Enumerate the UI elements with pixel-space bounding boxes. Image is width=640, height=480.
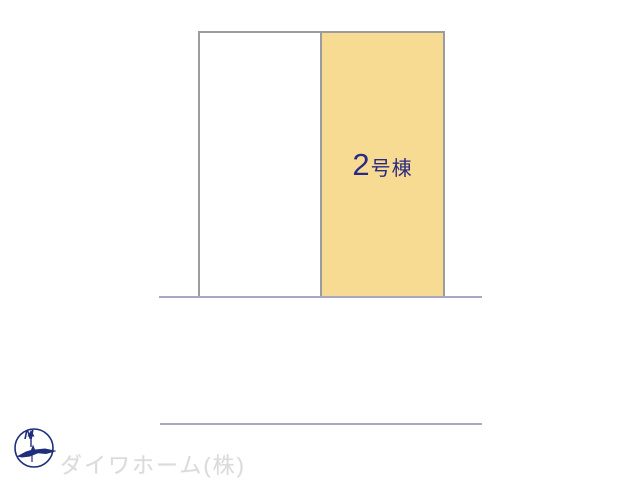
parcel-2-suffix: 号棟: [371, 159, 413, 179]
parcel-1: [200, 33, 320, 296]
road-edge-line-top: [159, 296, 482, 298]
parcel-2: 2号棟: [320, 33, 443, 296]
road-edge-line-bottom: [160, 423, 482, 425]
north-compass-icon: N: [12, 426, 56, 470]
compass-bird-silhouette: [17, 445, 57, 458]
compass-north-label: N: [24, 427, 34, 442]
company-watermark: ダイワホーム(株): [60, 448, 246, 480]
parcel-2-number: 2: [352, 149, 370, 180]
plot-outline: 2号棟: [198, 31, 445, 296]
parcel-2-label: 2号棟: [352, 149, 412, 180]
site-plan-canvas: 2号棟 N ダイワホーム(株): [0, 0, 640, 480]
